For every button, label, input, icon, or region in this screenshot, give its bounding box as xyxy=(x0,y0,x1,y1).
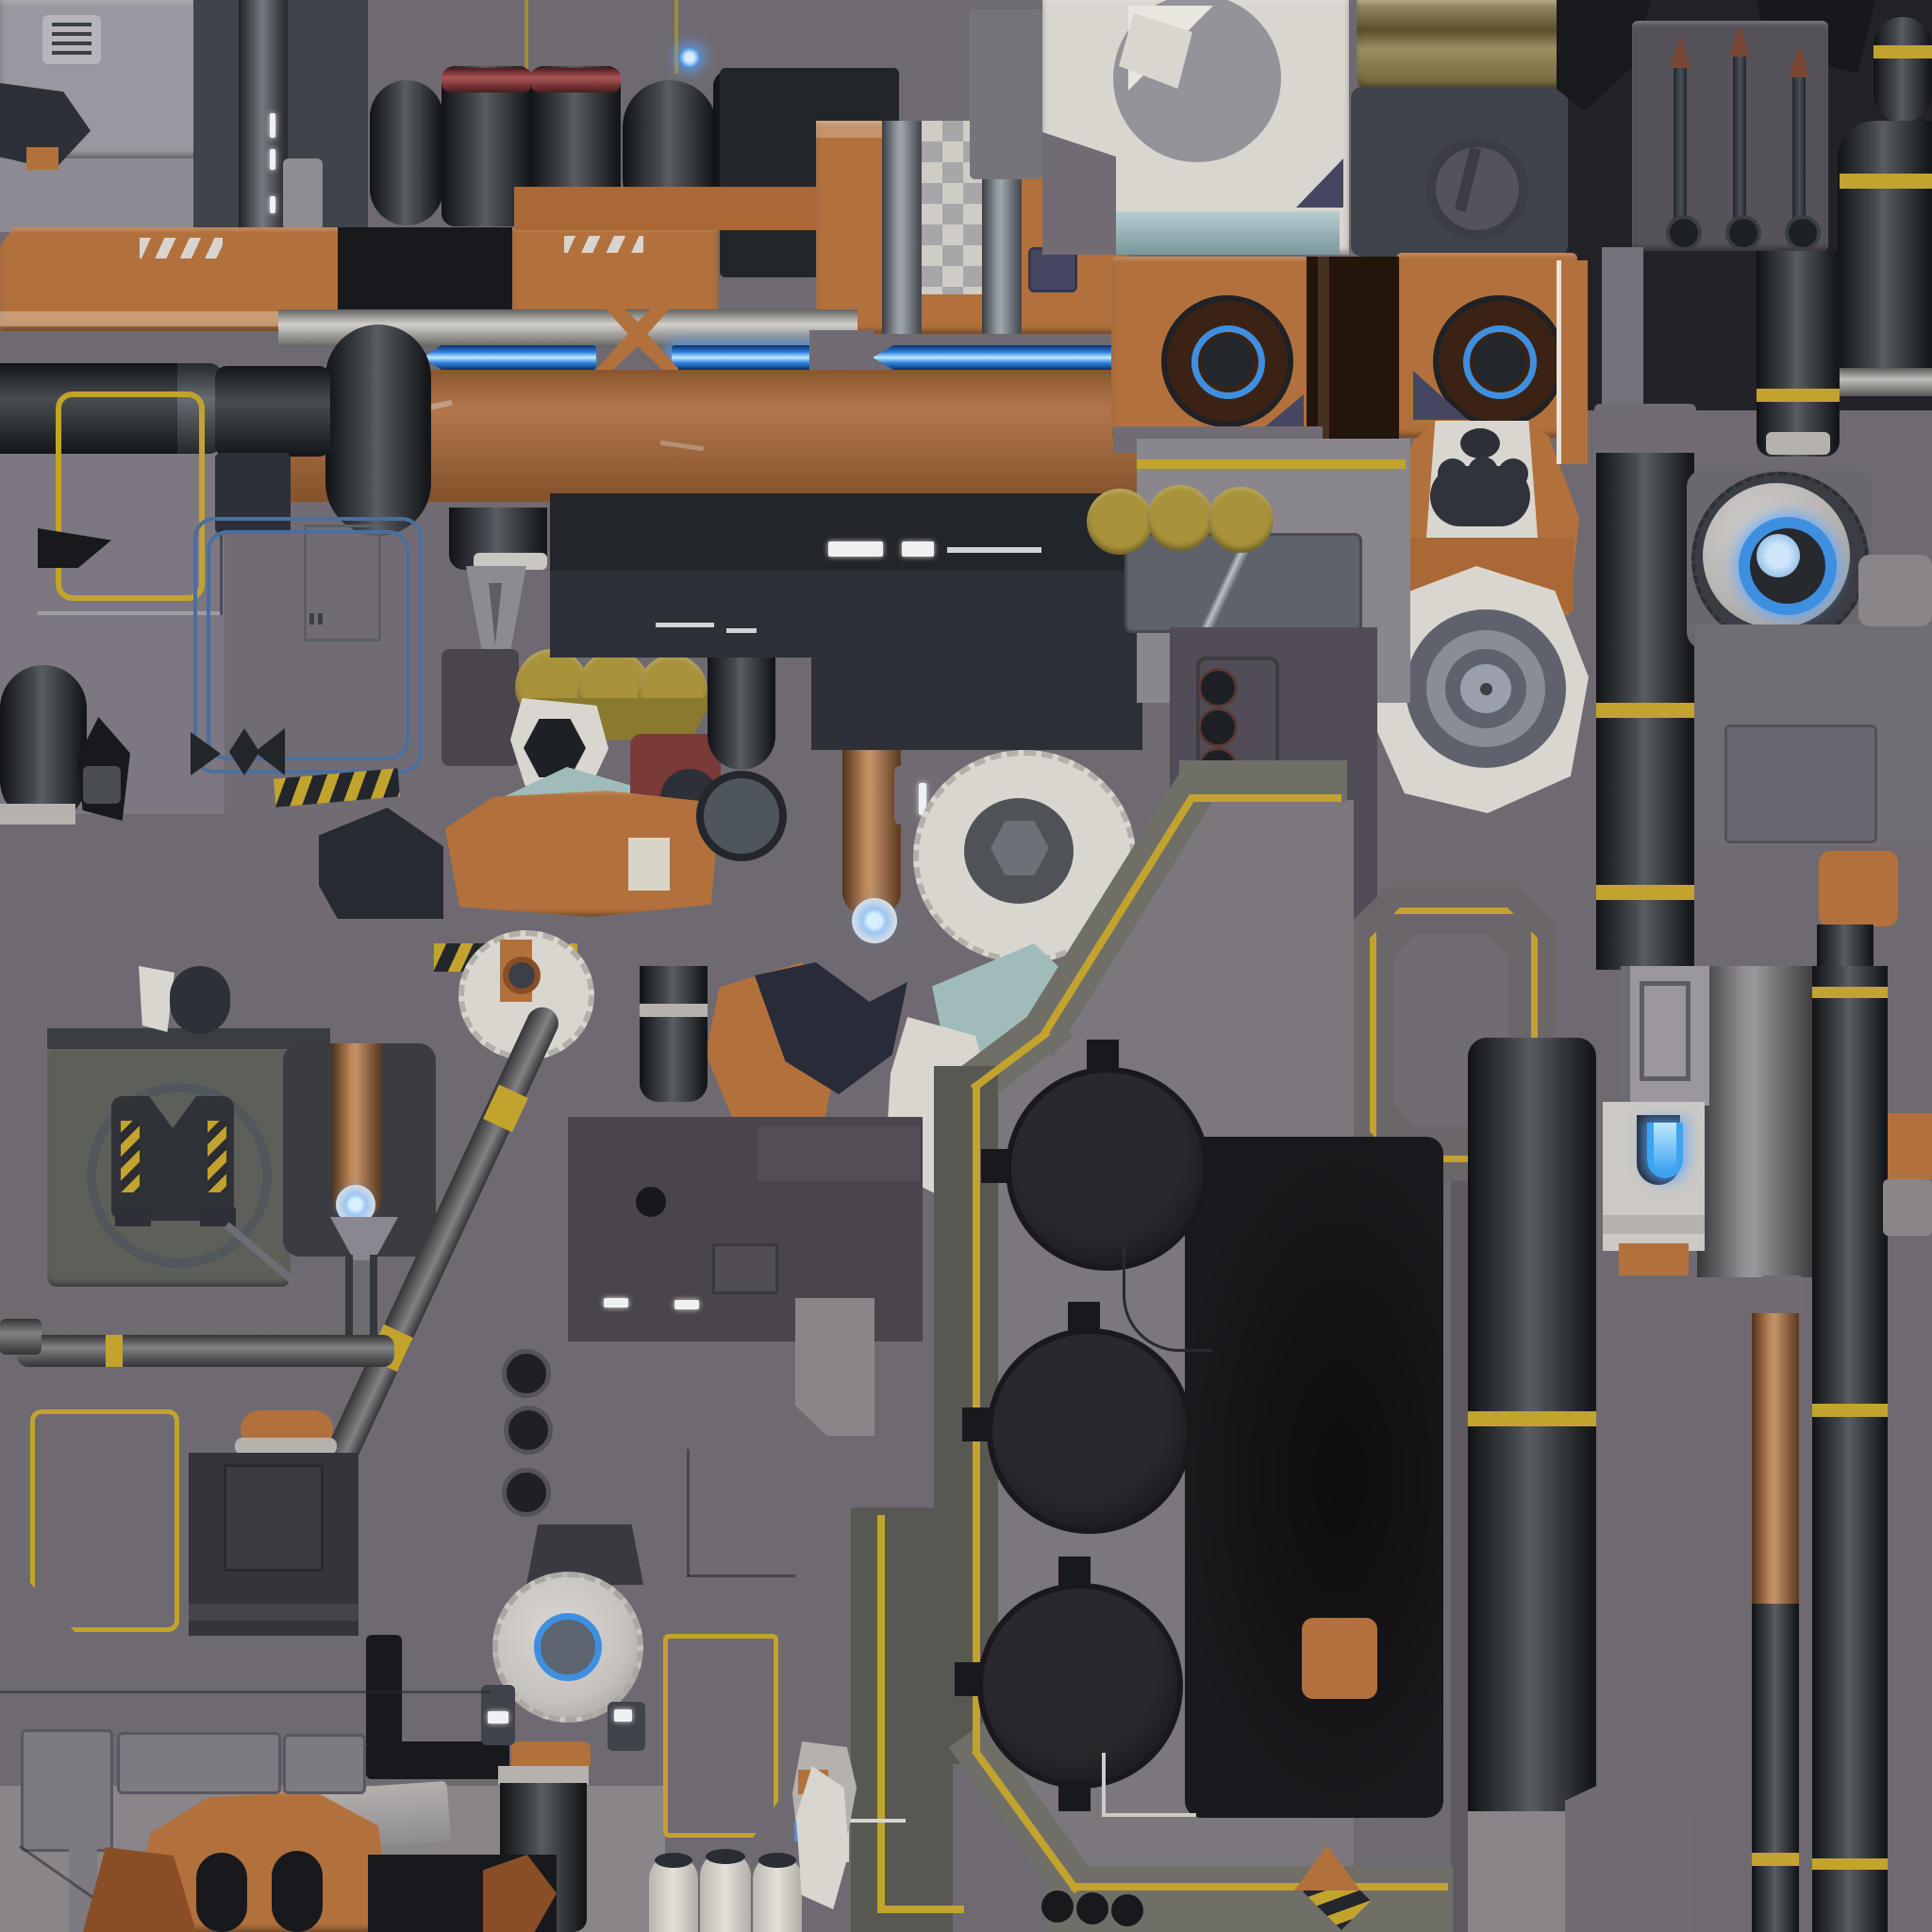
bay-frame-bottom xyxy=(1045,1866,1453,1932)
dark-pipe-stub-top xyxy=(170,966,230,1034)
claw-joint-disc xyxy=(696,771,787,861)
post-foot-1 xyxy=(115,1207,151,1226)
right-edge-pipe-band-2 xyxy=(1812,1404,1888,1417)
triple-cyl-crescent-1 xyxy=(655,1853,692,1868)
yellow-pipe-line-h xyxy=(1137,459,1406,469)
rivet-plate xyxy=(1724,724,1877,843)
texture-atlas-canvas xyxy=(0,0,1932,1932)
black-cyl-band xyxy=(640,1004,708,1017)
slate-tower-pipe xyxy=(239,0,288,230)
camera-lens-right-bluering xyxy=(1463,325,1537,399)
vent-grille-slits xyxy=(52,23,92,55)
recess-tip-core xyxy=(345,1194,366,1215)
hazard-post-2 xyxy=(208,1121,226,1192)
indicator-blue-u xyxy=(1647,1123,1683,1178)
pipe-bundle-vertical xyxy=(325,325,431,536)
pipe-mid-band xyxy=(1757,389,1840,402)
port-circle-2 xyxy=(504,1406,553,1455)
sensor-tab-right-led xyxy=(614,1709,632,1722)
sensor-silver-band xyxy=(498,1766,589,1785)
conduit-pipe-band xyxy=(1468,1411,1596,1426)
conduit-horizontal xyxy=(17,1335,394,1367)
rock-stub-2 xyxy=(272,1851,323,1932)
cabinet-bl-band xyxy=(189,1604,358,1621)
edge-orange-bit xyxy=(26,147,58,170)
gray-wedges-br xyxy=(1565,1768,1691,1932)
blue-dot-light xyxy=(679,47,700,68)
pipe-below-column xyxy=(1752,1604,1799,1932)
center-cabinet-led-2 xyxy=(675,1300,699,1309)
cabinet-bl-inset xyxy=(224,1464,324,1572)
canister-red-2-ring xyxy=(530,68,621,92)
bay-z-bracket xyxy=(1102,1753,1196,1817)
trigger-cavity-lobe2 xyxy=(1468,457,1498,487)
light-pillar-center xyxy=(795,1298,874,1436)
camera-lens-left-bluering xyxy=(1191,325,1265,399)
cream-block xyxy=(628,838,670,891)
gold-scallop-right-2 xyxy=(1147,485,1213,551)
engine-circle-2 xyxy=(987,1328,1192,1534)
orange-strip-right xyxy=(1557,260,1588,464)
rock-chunk-gray xyxy=(970,9,1043,179)
needle-hole-2 xyxy=(1725,215,1761,251)
right-edge-pipe xyxy=(1812,966,1888,1932)
center-cabinet-top-right xyxy=(758,1126,920,1181)
right-edge-pipe-band-3 xyxy=(1812,1858,1888,1870)
sensor-blue-ring xyxy=(534,1613,602,1681)
yellow-access-panel-outline xyxy=(56,391,205,601)
bay-yellow-top xyxy=(1191,794,1341,802)
left-cone-pad xyxy=(83,766,121,804)
engine-tab-1b xyxy=(981,1149,1009,1183)
wide-gray-cylinder xyxy=(1697,966,1814,1277)
hanging-wire-2 xyxy=(675,0,678,74)
center-cabinet-led-1 xyxy=(604,1298,628,1307)
bracket-column-inset xyxy=(1640,981,1690,1081)
engine-tab-2a xyxy=(1068,1302,1100,1334)
machinery-led-1 xyxy=(828,541,883,557)
pipe-marker-light-3 xyxy=(270,196,275,213)
pipe-marker-light-2 xyxy=(270,149,275,170)
seam-center-h xyxy=(687,1574,795,1577)
cabinet-port-1 xyxy=(1198,668,1238,708)
trigger-cavity-lobe1 xyxy=(1438,458,1468,489)
pipe-marker-light-1 xyxy=(270,113,275,138)
needle-pin-3 xyxy=(1792,66,1806,232)
rock-stub-1 xyxy=(196,1853,247,1932)
engine-tab-3a xyxy=(1058,1557,1091,1589)
seam-floor-h xyxy=(0,1690,491,1693)
mauve-block xyxy=(441,649,519,766)
cargo-strap-1 xyxy=(882,121,922,334)
gold-scallop-right-1 xyxy=(1087,489,1153,555)
orange-elbow-right xyxy=(1819,851,1898,926)
sensor-tab-left-led xyxy=(488,1711,508,1724)
needle-pin-1 xyxy=(1674,57,1687,232)
orange-column xyxy=(1752,1313,1799,1606)
machinery-line xyxy=(947,547,1041,553)
engine-tab-3c xyxy=(1058,1779,1091,1811)
orange-thin-strip xyxy=(514,187,835,230)
bracket-band xyxy=(1603,1215,1705,1234)
engine-circle-1 xyxy=(1006,1067,1209,1271)
blue-port-core xyxy=(1757,534,1800,577)
needle-pin-2 xyxy=(1733,45,1746,232)
trigger-eye xyxy=(1460,428,1500,458)
orange-mass-mid xyxy=(437,791,720,917)
orange-clamp-right xyxy=(1302,1618,1377,1699)
cable-horizontal xyxy=(366,1741,509,1779)
needle-hole-3 xyxy=(1785,215,1821,251)
port-circle-1 xyxy=(502,1349,551,1398)
cylinder-bracket xyxy=(1760,1275,1804,1315)
pipe-below-column-band xyxy=(1752,1853,1799,1866)
triple-cyl-crescent-3 xyxy=(758,1853,796,1868)
machinery-dash-a xyxy=(656,623,714,627)
machinery-band-lower-right xyxy=(811,656,1142,750)
center-cabinet-plate xyxy=(712,1243,778,1294)
floor-brick-2 xyxy=(117,1732,281,1794)
floor-brick-1 xyxy=(21,1729,113,1852)
canister-plain xyxy=(370,80,443,225)
canister-red-1-ring xyxy=(441,68,532,92)
long-pipe-band-1 xyxy=(1596,703,1694,718)
brass-cylinder xyxy=(1357,0,1566,89)
engine-tab-3b xyxy=(955,1662,983,1696)
floor-brick-3 xyxy=(283,1734,366,1794)
pipe-tr-big xyxy=(1838,121,1932,372)
engine-interior-dark xyxy=(1185,1137,1443,1818)
machinery-band-upper xyxy=(550,493,1142,571)
pipe-mid-vert xyxy=(1757,251,1840,457)
machinery-dash-b xyxy=(726,628,757,633)
pipe-mid-tip xyxy=(1766,432,1830,455)
cabinet-port-2 xyxy=(1198,708,1238,747)
orange-drop-pipe xyxy=(842,750,901,916)
bay-bump-2 xyxy=(1076,1892,1108,1924)
black-cyl-center xyxy=(640,966,708,1102)
blue-strip-1 xyxy=(423,345,596,370)
seam-center-v xyxy=(687,1449,690,1577)
slate-side-block xyxy=(283,158,323,230)
drop-pipe-tip-core xyxy=(862,908,887,933)
triple-cyl-crescent-2 xyxy=(706,1849,745,1864)
pipe-elbow-fitting xyxy=(1594,404,1696,458)
trigger-cavity-lobe3 xyxy=(1498,458,1528,489)
conduit-horiz-band xyxy=(106,1335,123,1367)
engine-tab-1a xyxy=(1087,1040,1119,1072)
right-edge-pipe-band-1 xyxy=(1812,987,1888,998)
machinery-led-2 xyxy=(902,541,934,557)
pipe-tr-stub xyxy=(1874,17,1932,123)
left-pipe-stub-foot xyxy=(0,804,75,824)
port-circle-3 xyxy=(502,1468,551,1517)
bracket-orange-patch xyxy=(1619,1243,1689,1275)
far-right-orange-patch xyxy=(1888,1113,1932,1179)
bay-bump-3 xyxy=(1111,1894,1143,1926)
shield-panel-yellow xyxy=(30,1409,179,1632)
yellow-panel-center xyxy=(663,1634,778,1838)
dish-hub-dot xyxy=(1480,683,1492,695)
long-pipe-band-2 xyxy=(1596,885,1694,900)
engine-tab-2b xyxy=(962,1407,991,1441)
gear-disc-pivot xyxy=(503,957,541,994)
hanging-wire-1 xyxy=(525,0,528,77)
pipe-tr-collar xyxy=(1838,368,1932,396)
bay-corner-mark xyxy=(845,1819,906,1862)
hazard-post-1 xyxy=(121,1121,140,1192)
bay-bump-1 xyxy=(1041,1890,1074,1923)
bay-outer-yellow-bend xyxy=(877,1906,964,1913)
pipe-bundle-horizontal xyxy=(215,366,330,457)
light-pillar-br xyxy=(1468,1811,1566,1932)
far-right-collar xyxy=(1883,1179,1932,1236)
conduit-stub-left xyxy=(0,1319,42,1355)
pipe-tr-big-band xyxy=(1840,174,1932,189)
left-edge-pipe-stub xyxy=(0,665,87,824)
needle-hole-1 xyxy=(1666,215,1702,251)
center-cabinet-hole xyxy=(636,1187,666,1217)
collar-piece xyxy=(1858,555,1932,626)
blue-strip-3 xyxy=(873,345,1113,370)
circuit-trace-inner xyxy=(207,530,409,760)
bay-yellow-bottom xyxy=(1071,1883,1448,1890)
machinery-band-lower xyxy=(550,571,1142,658)
hazard-beam-left-dashes xyxy=(140,238,223,258)
hazard-beam-mid-dashes xyxy=(564,236,643,253)
gold-scallop-right-3 xyxy=(1207,487,1274,553)
pipe-tr-stub-band xyxy=(1874,45,1932,58)
